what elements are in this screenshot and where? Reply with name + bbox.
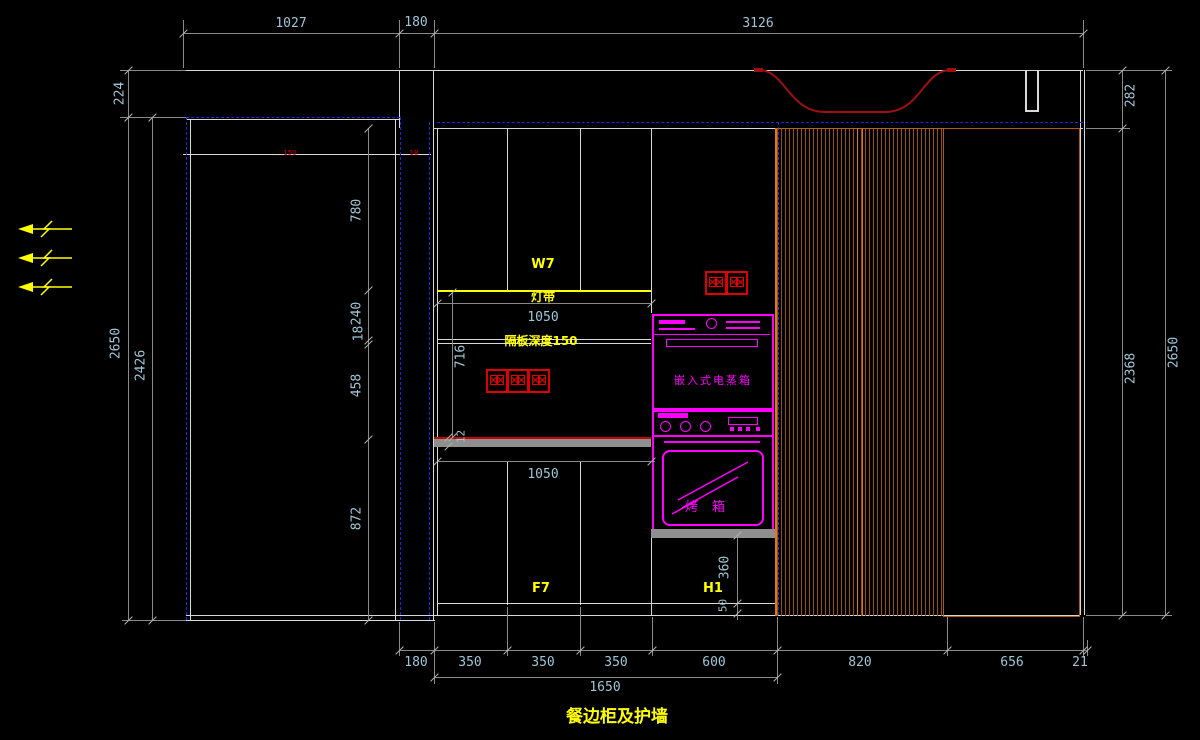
- oven-button-dot: [730, 427, 734, 431]
- wood-slat-highlight: [862, 129, 863, 616]
- left-panel-top-line: [186, 119, 399, 120]
- dim-text-350-2: 350: [518, 655, 568, 670]
- power-arrow-icon: [18, 279, 74, 295]
- dim-line-360: [737, 535, 738, 620]
- steam-oven-door-top: [666, 339, 758, 347]
- oven-column-left: [651, 128, 652, 313]
- wall-dashed-3: [429, 122, 430, 620]
- dim-text-780: 780: [350, 181, 365, 241]
- oven-button-dot: [746, 427, 750, 431]
- lower-divider-2: [580, 461, 581, 605]
- cabinet-left-edge: [437, 128, 438, 615]
- dim-text-600: 600: [689, 655, 739, 670]
- drawing-title: 餐边柜及护墙: [532, 702, 702, 727]
- dim-text-21: 21: [1060, 655, 1100, 670]
- dim-text-350-1: 350: [445, 655, 495, 670]
- upper-divider-2: [580, 128, 581, 290]
- oven-handle: [664, 441, 760, 443]
- dim-text-350-3: 350: [591, 655, 641, 670]
- wood-slat-panel: [775, 128, 945, 616]
- dim-text-12: 12: [455, 407, 468, 467]
- cad-elevation-drawing: 嵌入式电蒸箱 烤箱: [0, 0, 1200, 740]
- left-panel-bottom-line: [186, 620, 435, 621]
- power-outlet-icon: [507, 369, 529, 393]
- left-panel-right-edge: [395, 119, 396, 620]
- power-outlet-icon: [726, 271, 748, 295]
- label-light-strip: 灯带: [513, 288, 573, 305]
- oven-button-strip: [728, 417, 758, 425]
- dim-ext: [183, 20, 184, 68]
- oven-label: 烤箱: [662, 496, 762, 515]
- dim-text-3126: 3126: [708, 16, 808, 31]
- ceiling-notch: [1025, 70, 1039, 112]
- dim-ext: [122, 620, 186, 621]
- steam-oven-button-row: [726, 327, 760, 329]
- wall-dashed-left-top: [186, 117, 400, 118]
- oven-knob: [660, 421, 671, 432]
- dim-text-820: 820: [835, 655, 885, 670]
- dim-text-18: 18: [352, 304, 367, 364]
- dim-line-1650: [434, 677, 777, 678]
- power-arrow-icon: [18, 250, 74, 266]
- dim-line-bottom: [399, 650, 1087, 651]
- dim-line-1050-bottom: [437, 461, 655, 462]
- label-tall-unit: H1: [693, 581, 733, 596]
- lower-divider-1: [507, 461, 508, 605]
- dim-text-1050-top: 1050: [498, 310, 588, 325]
- dim-text-872: 872: [350, 489, 365, 549]
- label-shelf-note: 隔板深度150: [491, 332, 591, 349]
- dim-text-716: 716: [454, 327, 469, 387]
- power-outlet-icon: [486, 369, 508, 393]
- dim-text-458: 458: [350, 356, 365, 416]
- oven-knob: [700, 421, 711, 432]
- panel-note-left: 150: [278, 149, 302, 157]
- wall-dashed-2: [400, 117, 401, 620]
- dim-text-2368: 2368: [1124, 339, 1139, 399]
- steam-oven-button-row: [726, 321, 760, 323]
- upper-divider-1: [507, 128, 508, 290]
- dim-text-282: 282: [1124, 66, 1139, 126]
- dim-text-180-top: 180: [391, 15, 441, 30]
- label-upper-cabinet: W7: [523, 257, 563, 272]
- dim-ext: [1083, 20, 1084, 68]
- steam-oven-label: 嵌入式电蒸箱: [659, 372, 767, 388]
- dim-text-2426: 2426: [134, 336, 149, 396]
- dim-text-224: 224: [113, 64, 128, 124]
- left-panel-left-edge: [190, 119, 191, 620]
- dim-text-1027: 1027: [241, 16, 341, 31]
- right-edge-outer: [1080, 70, 1081, 615]
- plain-side-panel: [943, 128, 1080, 617]
- oven-knob: [680, 421, 691, 432]
- oven-display: [658, 413, 688, 418]
- wall-dashed-main-top: [437, 122, 1083, 123]
- dim-text-180-bottom: 180: [391, 655, 441, 670]
- dim-text-2650-left: 2650: [109, 314, 124, 374]
- steam-oven-panel-divider: [652, 334, 770, 335]
- dim-ext: [120, 70, 186, 71]
- dim-text-1050-bottom: 1050: [498, 467, 588, 482]
- oven-base-bar: [651, 529, 775, 538]
- wood-slat-highlight: [857, 129, 858, 616]
- left-panel-inner-line: [183, 154, 431, 155]
- dim-line-left-2426: [152, 117, 153, 620]
- dim-line-left-2650: [128, 70, 129, 620]
- oven-button-dot: [756, 427, 760, 431]
- dim-text-1650: 1650: [575, 680, 635, 695]
- pilaster-right-edge: [433, 70, 434, 620]
- power-arrow-icon: [18, 221, 74, 237]
- dim-ext: [1086, 615, 1172, 616]
- label-lower-cabinet: F7: [521, 581, 561, 596]
- dim-text-656: 656: [987, 655, 1037, 670]
- power-outlet-icon: [528, 369, 550, 393]
- steam-oven-display: [659, 320, 685, 324]
- oven-button-dot: [738, 427, 742, 431]
- right-edge-inner: [1084, 70, 1085, 615]
- wall-dashed-1: [186, 117, 187, 620]
- steam-oven-vent-line: [659, 328, 695, 330]
- dim-line-top: [183, 33, 1083, 34]
- dim-line-chain: [368, 128, 369, 620]
- dim-text-2650-right: 2650: [1167, 323, 1182, 383]
- power-outlet-icon: [705, 271, 727, 295]
- panel-note-right: 18: [406, 149, 422, 157]
- range-hood-curve: [745, 62, 960, 118]
- steam-oven-knob: [706, 318, 717, 329]
